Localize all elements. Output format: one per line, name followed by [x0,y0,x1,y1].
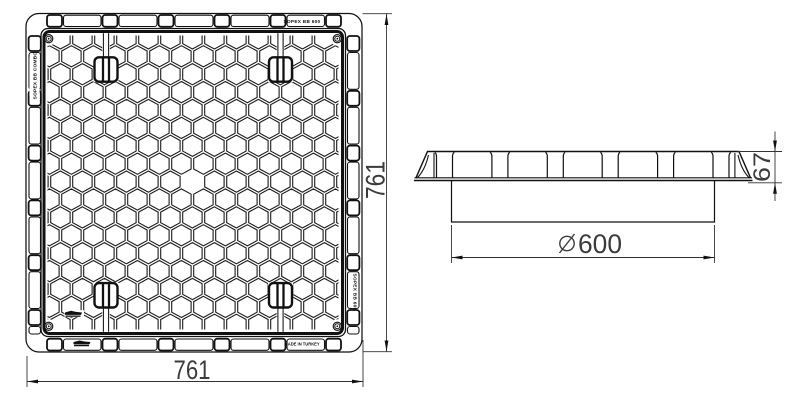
svg-text:761: 761 [361,161,391,199]
svg-text:600: 600 [578,229,622,259]
svg-text:MADE IN TURKEY: MADE IN TURKEY [284,342,320,347]
svg-text:SOPEX BB 600: SOPEX BB 600 [352,274,357,311]
svg-text:761: 761 [174,355,211,385]
svg-text:SOPEX BB COMBO: SOPEX BB COMBO [33,52,38,100]
svg-text:67: 67 [749,152,776,182]
svg-text:SOPEX BB 600: SOPEX BB 600 [284,19,321,24]
